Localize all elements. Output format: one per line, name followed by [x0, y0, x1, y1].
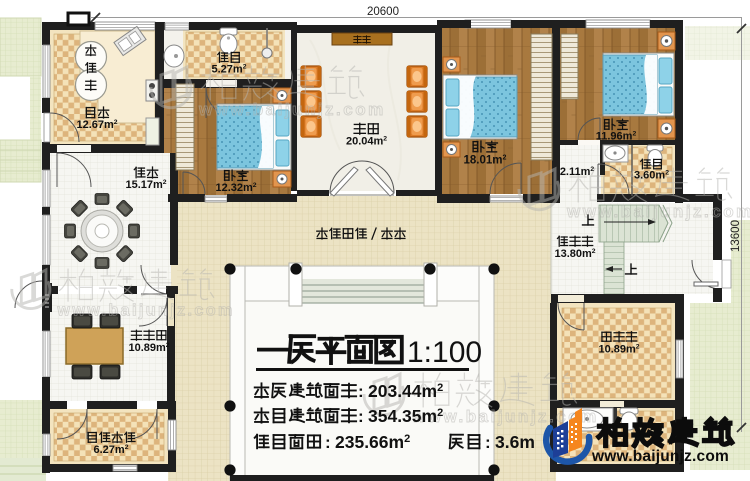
svg-text:5.27m2: 5.27m2: [212, 64, 247, 76]
svg-text:3.6m: 3.6m: [495, 432, 535, 452]
svg-text:www.baijunjz.com: www.baijunjz.com: [566, 202, 750, 221]
svg-text:203.44m2: 203.44m2: [368, 381, 443, 401]
svg-text:1:100: 1:100: [407, 336, 482, 369]
svg-text:10.89m2: 10.89m2: [598, 344, 639, 356]
svg-text:www.baijunjz.com: www.baijunjz.com: [591, 448, 729, 465]
svg-text::: :: [358, 382, 364, 401]
svg-text:235.66m2: 235.66m2: [335, 432, 410, 452]
svg-text:13.80m2: 13.80m2: [554, 248, 595, 260]
svg-text:20.04m2: 20.04m2: [346, 136, 387, 148]
svg-text::: :: [325, 433, 331, 452]
svg-text:2.11m2: 2.11m2: [560, 166, 595, 178]
svg-text:12.32m2: 12.32m2: [215, 182, 256, 194]
svg-text::: :: [358, 407, 364, 426]
svg-text:11.96m2: 11.96m2: [596, 131, 637, 143]
svg-text:10.89m2: 10.89m2: [128, 342, 169, 354]
svg-text:20600: 20600: [367, 6, 399, 18]
svg-text:354.35m2: 354.35m2: [368, 406, 443, 426]
svg-text:6.27m2: 6.27m2: [94, 444, 129, 456]
svg-text:www.baijunjz.com: www.baijunjz.com: [56, 302, 234, 320]
svg-text::: :: [485, 433, 491, 452]
svg-text:12.67m2: 12.67m2: [76, 119, 117, 131]
svg-text:3.60m2: 3.60m2: [634, 170, 669, 182]
svg-text:13600: 13600: [730, 220, 742, 252]
svg-text:www.baijunjz.com: www.baijunjz.com: [198, 100, 386, 119]
svg-text:18.01m2: 18.01m2: [464, 153, 507, 166]
svg-text:15.17m2: 15.17m2: [125, 179, 166, 191]
